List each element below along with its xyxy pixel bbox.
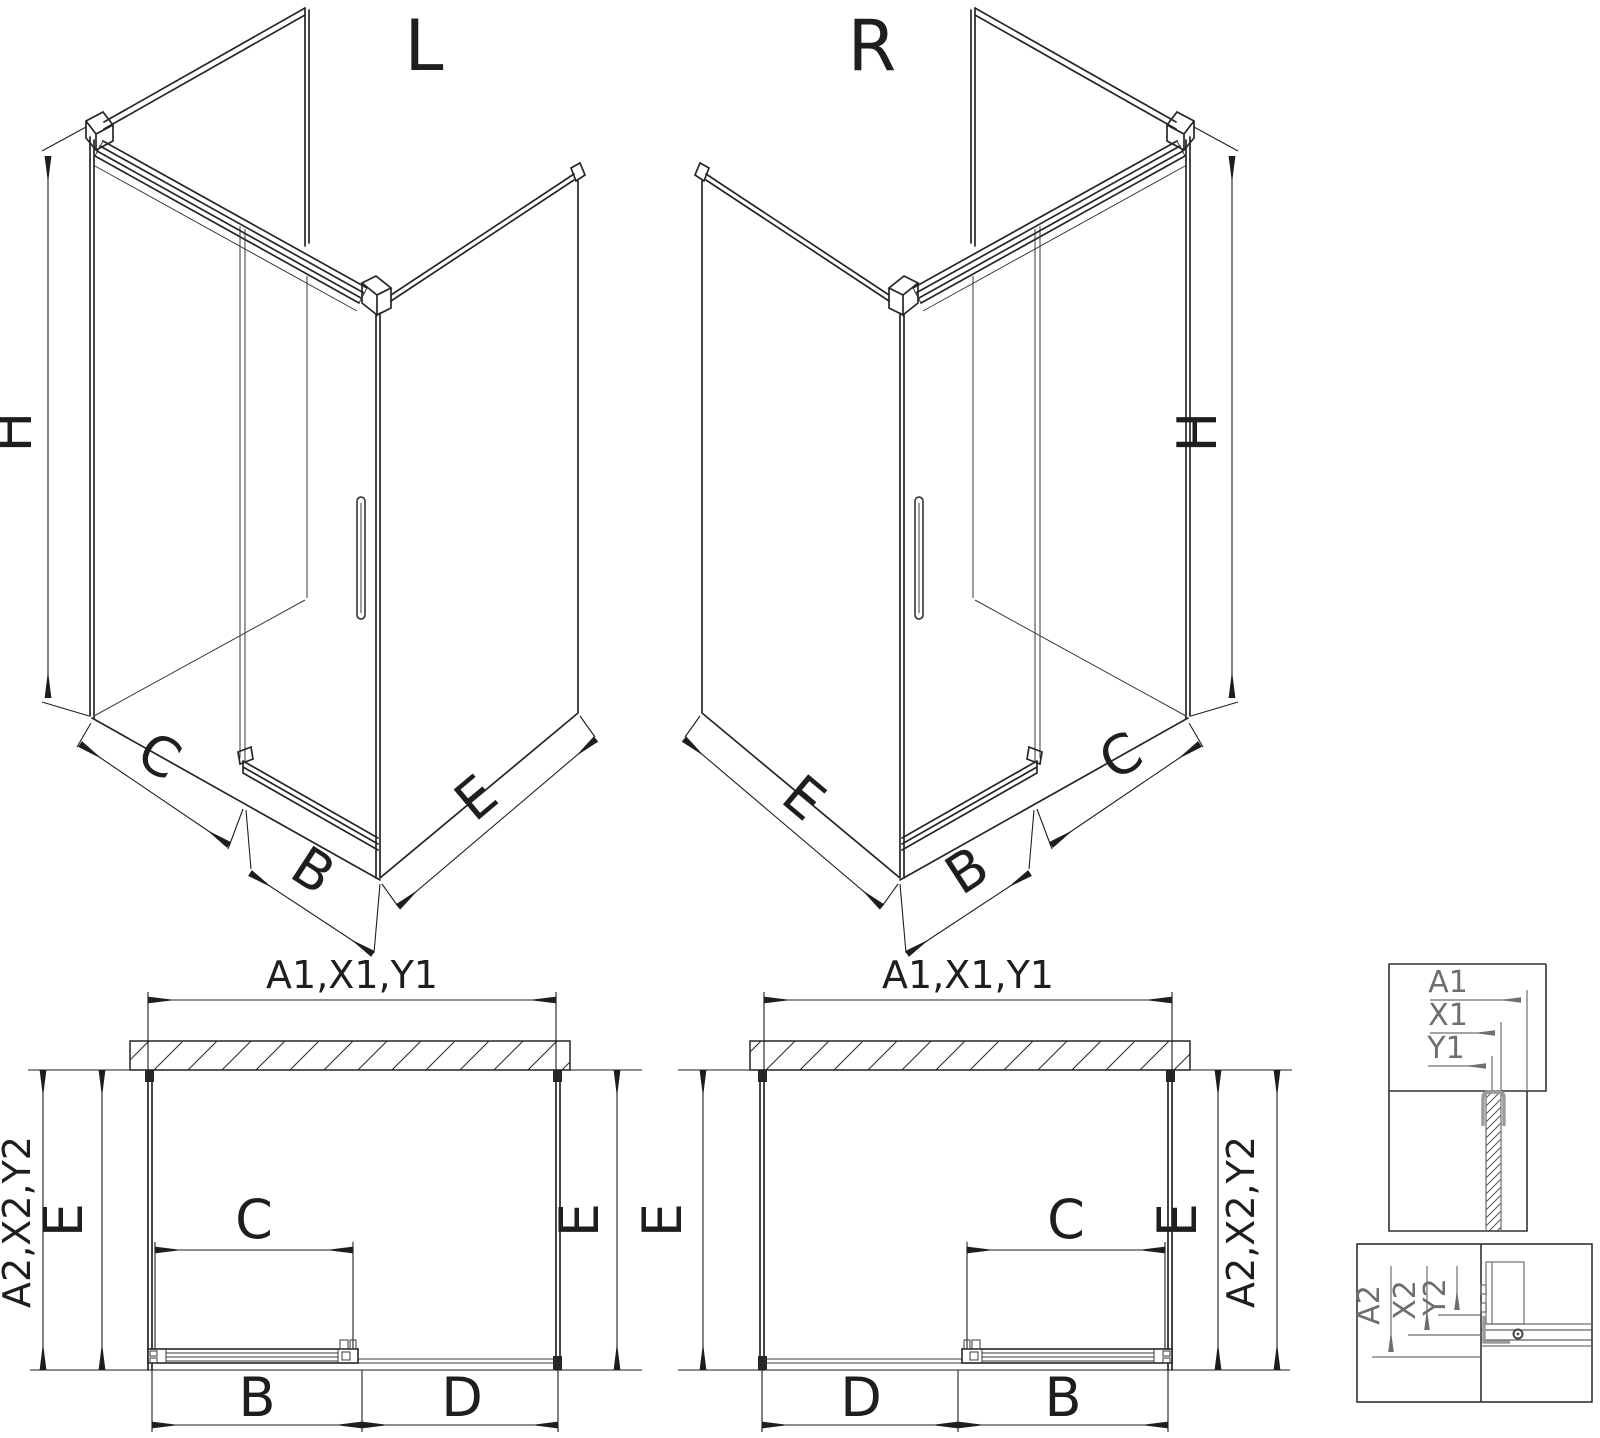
dim-label-C-left-plan: C <box>235 1188 273 1251</box>
glass-section-hatch <box>1486 1091 1501 1231</box>
detail-label-Y1: Y1 <box>1426 1031 1464 1066</box>
detail-label-Y2: Y2 <box>1418 1278 1453 1316</box>
dim-label-C-left-iso: C <box>127 719 191 792</box>
technical-drawing-page: L H C B E R H C B E A1,X1,Y1 A2,X2,Y2 E … <box>0 0 1600 1438</box>
iso-view-right: R H C B E <box>684 5 1238 954</box>
dim-label-E-right-plan-inner: E <box>631 1203 694 1237</box>
dim-label-E-right-iso: E <box>771 763 838 833</box>
dim-label-B-right-iso: B <box>934 834 999 907</box>
dim-label-C-right-iso: C <box>1089 719 1153 792</box>
view-label-L: L <box>405 5 444 87</box>
dim-label-E-left-plan-outer: E <box>32 1203 95 1237</box>
iso-view-left: L H C B E <box>0 5 596 954</box>
view-label-R: R <box>848 5 897 87</box>
dim-label-A1X1Y1-left-plan: A1,X1,Y1 <box>266 953 438 997</box>
dim-label-E-left-plan-inner: E <box>548 1203 611 1237</box>
dim-label-E-left-iso: E <box>443 763 510 833</box>
plan-view-right: A1,X1,Y1 A2,X2,Y2 E E C D B <box>631 953 1292 1432</box>
detail-wall-profile: A1 X1 Y1 <box>1389 964 1546 1231</box>
detail-label-A1: A1 <box>1428 965 1468 1000</box>
detail-bottom-rail: A2 X2 Y2 <box>1352 1244 1592 1402</box>
rail-angle-profile <box>1484 1316 1510 1342</box>
shower-enclosure-drawing: L H C B E R H C B E A1,X1,Y1 A2,X2,Y2 E … <box>0 0 1600 1438</box>
plan-view-left: A1,X1,Y1 A2,X2,Y2 E E C B D <box>0 953 642 1432</box>
dim-label-D-left-plan: D <box>441 1366 483 1429</box>
fixing-screw-center <box>1517 1333 1520 1336</box>
detail-label-A2: A2 <box>1352 1285 1387 1325</box>
dim-label-H-right-iso: H <box>1166 412 1229 453</box>
wall-section-right-plan <box>750 1041 1190 1070</box>
dim-label-B-right-plan: B <box>1044 1366 1081 1429</box>
dim-label-E-right-plan-outer: E <box>1146 1203 1209 1237</box>
dim-label-B-left-iso: B <box>280 834 345 907</box>
detail-label-X1: X1 <box>1428 998 1468 1033</box>
dim-label-A1X1Y1-right-plan: A1,X1,Y1 <box>882 953 1054 997</box>
dim-label-A2X2Y2-right-plan: A2,X2,Y2 <box>1219 1136 1263 1308</box>
dim-label-B-left-plan: B <box>238 1366 275 1429</box>
dim-label-C-right-plan: C <box>1047 1188 1085 1251</box>
dim-label-H-left-iso: H <box>0 412 44 453</box>
dim-label-D-right-plan: D <box>840 1366 882 1429</box>
wall-section-left-plan <box>130 1041 570 1070</box>
